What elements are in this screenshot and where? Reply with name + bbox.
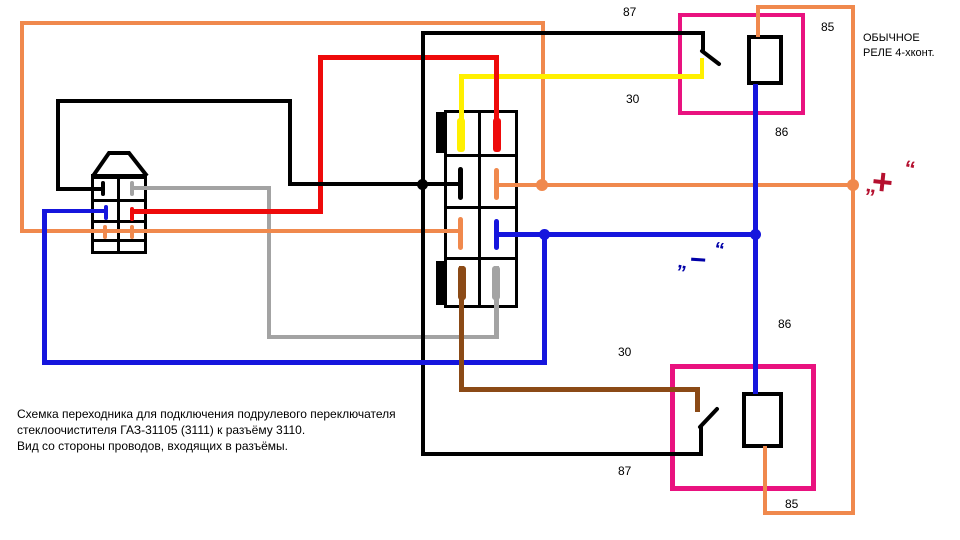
left-connector-roof bbox=[93, 153, 147, 176]
wire-orange-topright-horizontal bbox=[757, 5, 855, 9]
blue-pin-middle-connector bbox=[494, 219, 499, 250]
orange-pin-middle-connector-row2 bbox=[494, 168, 499, 200]
plus-symbol: „ + “ bbox=[858, 150, 928, 210]
brown-pin-middle-connector bbox=[458, 266, 466, 300]
left-connector-column-divider bbox=[117, 174, 120, 254]
top-relay-label-86: 86 bbox=[775, 125, 788, 139]
bottom-relay-label-85: 85 bbox=[785, 497, 798, 511]
wire-black-loop-vertical bbox=[56, 99, 60, 191]
top-relay-label-87: 87 bbox=[623, 5, 636, 19]
relay-caption-line1: ОБЫЧНОЕ bbox=[863, 31, 935, 46]
orange-pin-middle-connector-row3 bbox=[458, 217, 463, 250]
middle-connector-key-tab-bottom bbox=[436, 261, 445, 305]
orange-pin-left-connector bbox=[103, 225, 107, 239]
wire-orange-row2-horizontal bbox=[496, 183, 855, 187]
middle-connector-row-divider bbox=[444, 206, 518, 209]
wire-blue-left-vertical bbox=[42, 209, 47, 365]
left-connector-row-divider bbox=[91, 220, 147, 223]
middle-connector-row-divider bbox=[444, 257, 518, 260]
wire-red-down-vertical bbox=[494, 55, 499, 125]
bottom-relay-label-86: 86 bbox=[778, 317, 791, 331]
blue-junction-dot bbox=[750, 229, 761, 240]
gray-pin-middle-connector bbox=[492, 266, 500, 300]
diagram-note: Схемка переходника для подключения подру… bbox=[17, 406, 396, 454]
middle-connector-row-divider bbox=[444, 154, 518, 157]
wire-orange-row3-horizontal bbox=[20, 229, 463, 233]
minus-sign: − bbox=[689, 245, 707, 274]
top-relay-label-30: 30 bbox=[626, 92, 639, 106]
red-pin-left-connector bbox=[130, 207, 134, 221]
plus-sign: + bbox=[870, 163, 895, 201]
minus-symbol: „ − “ bbox=[672, 240, 732, 285]
middle-connector-body bbox=[444, 110, 518, 308]
note-line2: стеклоочистителя ГАЗ-31105 (3111) к разъ… bbox=[17, 422, 396, 438]
wire-orange-top-horizontal bbox=[20, 21, 545, 25]
wire-blue-bottom-horizontal bbox=[42, 360, 547, 365]
top-relay-coil bbox=[747, 35, 783, 85]
bottom-relay-label-87: 87 bbox=[618, 464, 631, 478]
bottom-relay-label-30: 30 bbox=[618, 345, 631, 359]
red-pin-middle-connector bbox=[493, 118, 501, 152]
wire-yellow-vertical bbox=[459, 74, 464, 124]
wire-black-row2-horizontal bbox=[288, 182, 462, 186]
wire-black-loop-horizontal bbox=[56, 187, 104, 191]
wire-orange-bottom-horizontal bbox=[763, 511, 855, 515]
relay-caption: ОБЫЧНОЕ РЕЛЕ 4-хконт. bbox=[863, 31, 935, 61]
yellow-pin-middle-connector bbox=[457, 118, 465, 152]
black-switch-stub-bottom-relay bbox=[699, 425, 703, 456]
orange-pin-left-connector bbox=[130, 225, 134, 239]
wiring-diagram-canvas: 87 30 85 86 86 30 87 85 ОБЫЧНОЕ РЕЛЕ 4-х… bbox=[0, 0, 960, 540]
wire-black-top-horizontal bbox=[421, 31, 705, 35]
wire-orange-top-coil-stub bbox=[756, 5, 760, 37]
note-line1: Схемка переходника для подключения подру… bbox=[17, 406, 396, 422]
wire-red-vertical bbox=[318, 55, 323, 214]
yellow-relay-contact-tick bbox=[700, 58, 704, 78]
wire-blue-mid-vertical bbox=[542, 236, 547, 365]
minus-quote-close: “ bbox=[712, 239, 726, 261]
wire-red-top-horizontal bbox=[318, 55, 499, 60]
wire-orange-bottom-coil-stub bbox=[763, 446, 767, 514]
bottom-relay-coil bbox=[742, 392, 783, 448]
wire-black-loop-horizontal bbox=[56, 99, 292, 103]
black-pin-middle-connector bbox=[458, 167, 463, 200]
wire-blue-row3-horizontal bbox=[497, 232, 756, 237]
wire-black-loop-vertical bbox=[288, 99, 292, 186]
orange-junction-dot bbox=[536, 179, 548, 191]
black-junction-dot bbox=[417, 179, 428, 190]
wire-brown-relay-stub bbox=[695, 387, 700, 412]
wire-orange-right-vertical bbox=[851, 5, 855, 515]
plus-quote-close: “ bbox=[902, 157, 917, 181]
black-switch-stub-top-relay bbox=[701, 31, 705, 52]
top-relay-label-85: 85 bbox=[821, 20, 834, 34]
gray-pin-left-connector bbox=[130, 181, 134, 196]
blue-junction-dot bbox=[539, 229, 550, 240]
middle-connector-key-tab-top bbox=[436, 112, 445, 153]
minus-quote-open: „ bbox=[676, 251, 690, 273]
middle-connector-column-divider bbox=[478, 110, 481, 308]
blue-pin-left-connector bbox=[104, 205, 108, 220]
top-relay-box bbox=[678, 13, 805, 115]
black-pin-left-connector bbox=[101, 181, 105, 196]
wire-black-bottom-horizontal bbox=[421, 452, 702, 456]
wire-red-row2-horizontal bbox=[132, 209, 322, 214]
wire-black-main-vertical bbox=[421, 31, 425, 456]
wire-gray-horizontal bbox=[133, 186, 271, 190]
wire-blue-row2-horizontal bbox=[44, 209, 108, 213]
note-line3: Вид со стороны проводов, входящих в разъ… bbox=[17, 438, 396, 454]
left-connector-row-divider bbox=[91, 199, 147, 202]
wire-orange-mid-vertical bbox=[541, 21, 545, 187]
left-connector-row-divider bbox=[91, 239, 147, 242]
relay-caption-line2: РЕЛЕ 4-хконт. bbox=[863, 46, 935, 61]
wire-orange-left-vertical bbox=[20, 21, 24, 233]
wire-brown-horizontal bbox=[459, 387, 699, 392]
